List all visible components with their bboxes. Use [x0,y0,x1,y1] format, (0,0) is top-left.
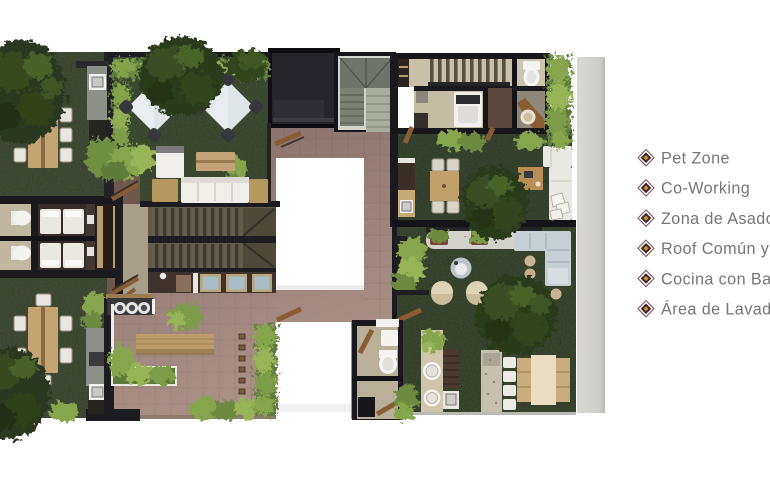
svg-text:Roof Común y Bar: Roof Común y Bar [661,240,770,258]
svg-text:Cocina con Barra: Cocina con Barra [661,270,770,288]
svg-text:Zona de Asador: Zona de Asador [661,210,770,228]
svg-text:Co-Working: Co-Working [661,180,750,198]
svg-text:Pet Zone: Pet Zone [661,150,730,168]
svg-text:Área de Lavado: Área de Lavado [661,300,770,319]
